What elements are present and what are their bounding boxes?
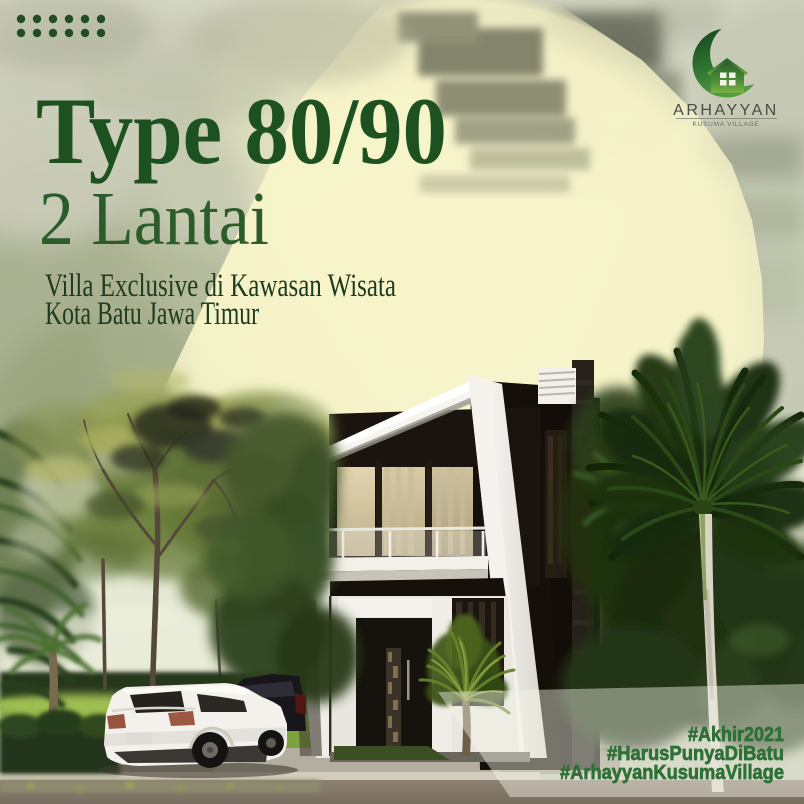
svg-text:#ArhayyanKusumaVillage: #ArhayyanKusumaVillage <box>560 762 784 784</box>
svg-text:KUSUMA VILLAGE: KUSUMA VILLAGE <box>693 121 760 128</box>
svg-text:2 Lantai: 2 Lantai <box>39 177 269 261</box>
svg-text:ARHAYYAN: ARHAYYAN <box>673 102 779 119</box>
svg-text:Type 80/90: Type 80/90 <box>36 78 447 184</box>
svg-text:Kota Batu Jawa Timur: Kota Batu Jawa Timur <box>45 296 259 332</box>
